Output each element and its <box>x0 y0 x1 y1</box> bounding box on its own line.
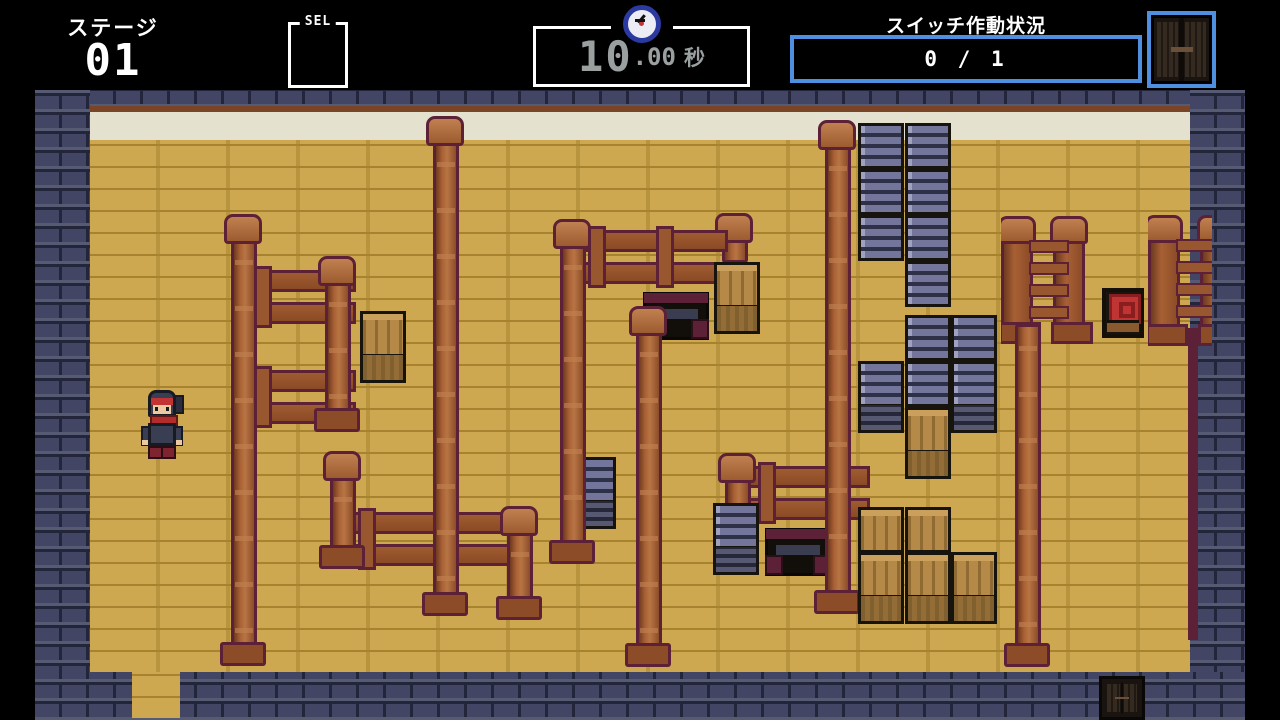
ctop <box>951 552 997 598</box>
prung <box>829 534 847 539</box>
prung <box>829 212 847 217</box>
prung <box>829 258 847 263</box>
wooden-crate <box>714 262 760 334</box>
cface <box>858 596 904 624</box>
wall-opening <box>132 672 180 718</box>
brace <box>656 226 674 288</box>
pcap <box>318 256 356 286</box>
pprung <box>1176 283 1212 296</box>
prung <box>235 582 253 587</box>
play-field[interactable] <box>0 0 1280 720</box>
pcap <box>629 306 667 336</box>
wooden-crate <box>905 552 951 624</box>
prung <box>334 497 352 502</box>
metal-crate <box>905 261 951 307</box>
prung <box>235 306 253 311</box>
ctop <box>858 215 904 261</box>
wooden-crate <box>951 552 997 624</box>
pcap <box>426 116 464 146</box>
entities-layer <box>0 0 1280 720</box>
wooden-post <box>426 116 466 616</box>
pcap <box>553 219 591 249</box>
wooden-post <box>553 219 593 564</box>
ctop <box>951 315 997 361</box>
prung <box>1019 576 1037 581</box>
switch-count: 0 / 1 <box>924 47 1007 71</box>
metal-crate <box>858 169 904 215</box>
pbase <box>422 592 468 616</box>
ctop <box>858 552 904 598</box>
pbody <box>1015 324 1041 657</box>
ctop <box>905 315 951 361</box>
ctop <box>905 552 951 598</box>
ctop <box>858 507 904 553</box>
pprung <box>1029 262 1069 275</box>
prung <box>564 265 582 270</box>
pbody <box>231 226 257 656</box>
n-body <box>148 423 176 446</box>
pbase <box>625 643 671 667</box>
cface <box>951 596 997 624</box>
clock-center-dot <box>639 21 644 26</box>
prung <box>235 260 253 265</box>
pprung <box>1176 239 1212 252</box>
metal-crate <box>905 169 951 215</box>
pbase <box>549 540 595 564</box>
timer-fraction: .00 <box>633 43 676 71</box>
closed-double-door-icon <box>1154 18 1209 81</box>
metal-crate <box>858 361 904 433</box>
wooden-crate <box>905 407 951 479</box>
prung <box>829 396 847 401</box>
prung <box>564 449 582 454</box>
prung <box>640 536 658 541</box>
exit-door <box>1099 676 1145 720</box>
wooden-crate <box>858 552 904 624</box>
wooden-crate <box>858 507 904 553</box>
prung <box>437 300 455 305</box>
n-hand l <box>142 440 148 445</box>
cface <box>714 306 760 334</box>
n-band <box>151 398 173 405</box>
cart-wheel r <box>691 319 709 339</box>
pbase <box>314 408 360 432</box>
metal-crate <box>905 123 951 169</box>
pcap <box>500 506 538 536</box>
prung <box>437 346 455 351</box>
cart-bar <box>776 545 820 555</box>
cface <box>713 547 759 575</box>
prung <box>235 444 253 449</box>
ctop <box>713 503 759 549</box>
prung <box>437 392 455 397</box>
prung <box>640 444 658 449</box>
metal-crate <box>858 123 904 169</box>
n-face <box>153 405 171 414</box>
prung <box>437 530 455 535</box>
prung <box>235 490 253 495</box>
timer-seconds: 10 <box>578 32 633 81</box>
prung <box>329 302 347 307</box>
cart-rim <box>644 293 708 303</box>
n-hand r <box>176 440 182 445</box>
wooden-crate <box>360 311 406 383</box>
metal-crate <box>858 215 904 261</box>
prung <box>640 490 658 495</box>
prung <box>1019 392 1037 397</box>
pbase <box>1004 643 1050 667</box>
prung <box>829 442 847 447</box>
ctop <box>858 361 904 407</box>
pprung <box>1029 284 1069 297</box>
prung <box>640 398 658 403</box>
prung <box>640 352 658 357</box>
switch-status-box: 0 / 1 <box>790 35 1142 83</box>
timer-unit-label: 秒 <box>684 42 705 72</box>
pprung <box>1029 240 1069 253</box>
prung <box>437 208 455 213</box>
ctop <box>905 361 951 407</box>
prung <box>235 628 253 633</box>
pcap <box>323 451 361 481</box>
wooden-post <box>1008 322 1048 667</box>
ctop <box>714 262 760 308</box>
wooden-post <box>500 506 540 620</box>
sw-base <box>1107 320 1139 332</box>
ctop <box>858 123 904 169</box>
prung <box>437 162 455 167</box>
wooden-crate <box>905 507 951 553</box>
prung <box>235 398 253 403</box>
brace <box>758 462 776 524</box>
metal-crate <box>951 315 997 361</box>
n-foot r <box>161 446 176 459</box>
prung <box>829 166 847 171</box>
prung <box>437 438 455 443</box>
ctop <box>905 215 951 261</box>
metal-crate <box>905 215 951 261</box>
pprung <box>1176 261 1212 274</box>
metal-crate <box>713 503 759 575</box>
door-art <box>1105 682 1139 714</box>
sel-slot: SEL <box>288 22 348 88</box>
metal-crate <box>951 361 997 433</box>
prung <box>437 254 455 259</box>
prung <box>235 536 253 541</box>
prung <box>640 582 658 587</box>
prung <box>437 576 455 581</box>
stage-number: 01 <box>58 42 168 79</box>
ctop <box>905 169 951 215</box>
cface <box>360 355 406 383</box>
pbase <box>319 545 365 569</box>
metal-crate <box>905 315 951 361</box>
prung <box>1019 530 1037 535</box>
cface <box>951 405 997 433</box>
pcap <box>718 453 756 483</box>
ctop <box>951 361 997 407</box>
ctop <box>905 261 951 307</box>
metal-crate <box>905 361 951 407</box>
pbase <box>814 590 860 614</box>
pprung <box>1176 305 1212 318</box>
prung <box>235 352 253 357</box>
wooden-post <box>323 451 363 569</box>
prung <box>1019 346 1037 351</box>
ctop <box>858 169 904 215</box>
prung <box>1019 622 1037 627</box>
fence-rail <box>578 230 728 284</box>
cface <box>905 451 951 479</box>
prung <box>437 484 455 489</box>
prung <box>1019 438 1037 443</box>
pbody <box>636 318 662 657</box>
clock-icon <box>623 5 661 43</box>
wooden-post <box>224 214 264 666</box>
prung <box>511 552 529 557</box>
player-ninja <box>141 390 183 458</box>
prung <box>564 403 582 408</box>
pcap <box>818 120 856 150</box>
cface <box>905 596 951 624</box>
cart-wheel l <box>765 555 783 575</box>
prung <box>640 628 658 633</box>
pcap <box>224 214 262 244</box>
wooden-post-pair <box>1148 215 1212 346</box>
ppbase <box>1051 322 1093 344</box>
door-indicator <box>1147 11 1216 88</box>
prung <box>329 348 347 353</box>
cface <box>858 405 904 433</box>
prung <box>564 311 582 316</box>
wooden-post <box>629 306 669 667</box>
prung <box>829 350 847 355</box>
prung <box>564 495 582 500</box>
switch-status-title: スイッチ作動状況 <box>790 11 1142 38</box>
pprung <box>1029 306 1069 319</box>
door-handle <box>1171 47 1193 52</box>
wooden-post <box>818 120 858 614</box>
pbase <box>496 596 542 620</box>
prung <box>829 304 847 309</box>
dhandle <box>1115 697 1129 700</box>
prung <box>829 488 847 493</box>
floor-switch <box>1102 288 1144 338</box>
ctop <box>360 311 406 357</box>
ctop <box>905 123 951 169</box>
timer-panel: 10 .00 秒 <box>533 26 750 87</box>
prung <box>329 394 347 399</box>
wooden-post <box>318 256 358 432</box>
edge-post <box>1188 328 1198 640</box>
pbase <box>220 642 266 666</box>
stage-indicator: ステージ 01 <box>58 12 168 79</box>
game-screen: ステージ 01 SEL 10 .00 秒 スイッチ作動状況 0 / 1 <box>0 0 1280 720</box>
prung <box>564 357 582 362</box>
sel-label: SEL <box>300 14 336 29</box>
pbody <box>560 231 586 554</box>
ppbase <box>1198 324 1212 346</box>
ctop <box>905 507 951 553</box>
ppbase <box>1148 324 1188 346</box>
prung <box>1019 484 1037 489</box>
ctop <box>905 407 951 453</box>
